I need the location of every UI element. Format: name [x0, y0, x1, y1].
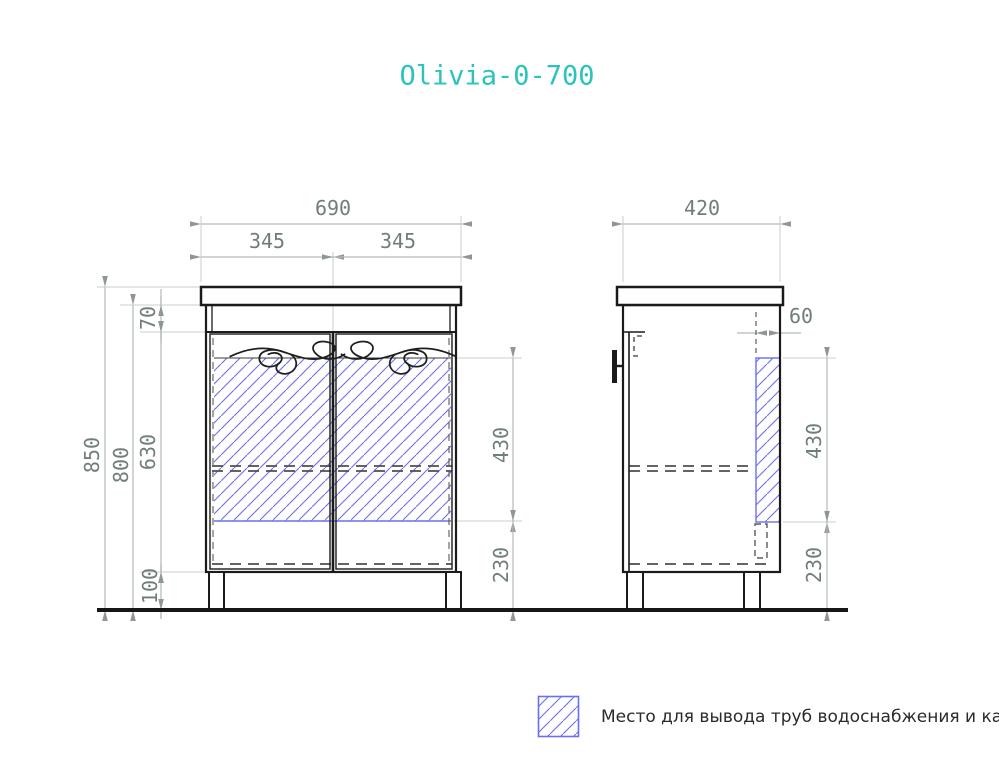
side-view	[612, 287, 783, 609]
dim-front-half-right: 345	[380, 231, 416, 251]
side-leg-front	[627, 572, 643, 609]
side-leg-back	[744, 572, 760, 609]
side-countertop	[617, 287, 783, 305]
dim-band-height: 70	[138, 306, 158, 330]
front-outline	[201, 287, 461, 609]
dim-total-height: 850	[82, 437, 102, 473]
dim-body-height: 800	[111, 447, 131, 483]
side-hinge-dashed	[634, 336, 642, 356]
drawing-canvas	[0, 0, 999, 769]
dim-leg-height: 100	[140, 568, 160, 604]
front-cabinet-body	[206, 305, 456, 572]
dim-side-pipe-height: 430	[804, 423, 824, 459]
dim-front-width: 690	[315, 198, 351, 218]
side-hidden-shelf-lines	[629, 466, 770, 564]
side-pipe-channel-dashed	[755, 524, 767, 558]
legend-hatch-swatch-icon	[537, 695, 581, 739]
front-leg-right	[446, 572, 461, 609]
pipe-zone-side-hatch	[756, 358, 780, 522]
dim-front-pipe-bottom: 230	[491, 547, 511, 583]
front-view	[201, 287, 461, 609]
dim-door-height: 630	[138, 434, 158, 470]
dim-side-pipe-width: 60	[789, 306, 813, 326]
dim-side-pipe-bottom: 230	[804, 547, 824, 583]
legend-label: Место для вывода труб водоснабжения и ка…	[601, 707, 999, 727]
front-leg-left	[209, 572, 224, 609]
dim-side-width: 420	[684, 198, 720, 218]
page-title: Olivia-0-700	[399, 61, 594, 92]
door-handle-icon	[612, 350, 617, 383]
technical-drawing-page: Olivia-0-700 690 345 345 420 850 800 70 …	[0, 0, 999, 769]
front-countertop	[201, 287, 461, 305]
dim-front-pipe-height: 430	[491, 427, 511, 463]
dim-front-half-left: 345	[249, 231, 285, 251]
